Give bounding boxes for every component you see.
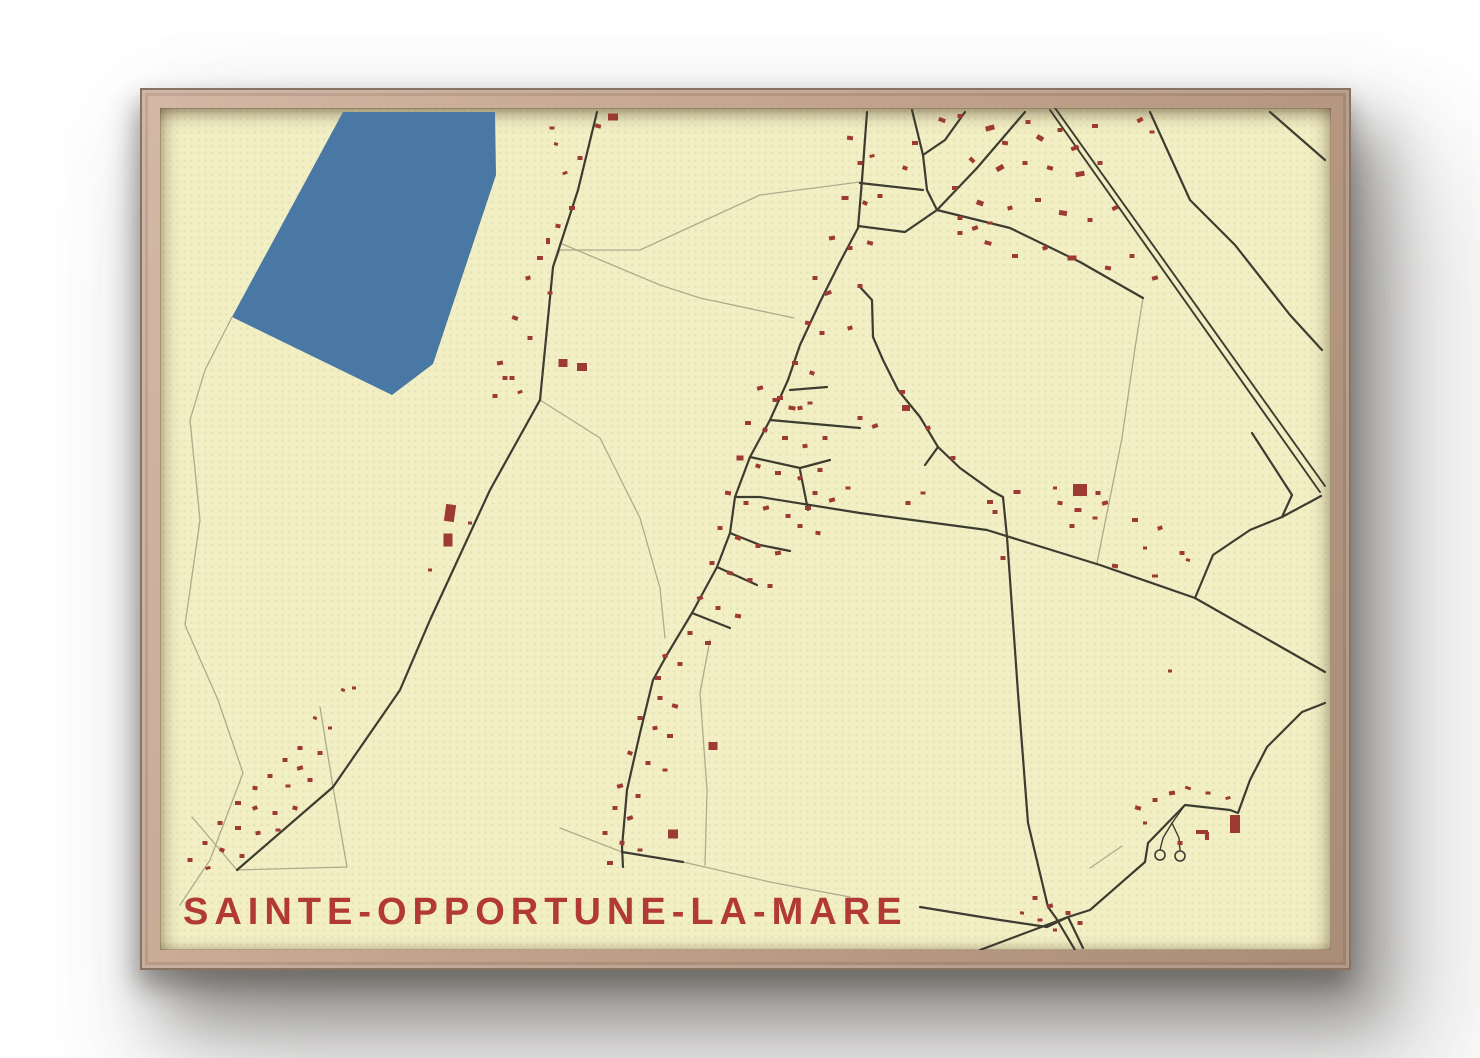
road-segment — [770, 420, 860, 428]
building — [1088, 218, 1093, 222]
building — [268, 774, 273, 778]
building — [1035, 198, 1041, 202]
building — [546, 238, 550, 244]
building — [537, 256, 543, 260]
road-segment — [980, 917, 1068, 950]
building — [1206, 792, 1211, 795]
building — [1096, 491, 1101, 495]
building — [444, 534, 453, 547]
building — [569, 206, 575, 210]
road-segment — [1270, 112, 1325, 160]
building — [652, 726, 658, 731]
road-segment — [735, 497, 1325, 672]
building — [906, 501, 911, 505]
building — [318, 751, 323, 755]
building — [987, 500, 993, 504]
building — [818, 468, 823, 472]
building — [218, 821, 223, 825]
building — [688, 631, 693, 635]
building — [1078, 921, 1083, 925]
building — [696, 595, 703, 601]
building — [815, 531, 821, 536]
building — [1105, 266, 1112, 271]
culdesac-loop — [1175, 851, 1185, 861]
building — [444, 504, 456, 522]
building — [813, 491, 818, 495]
building — [846, 487, 851, 490]
building — [510, 376, 515, 380]
poster-frame: SAINTE-OPPORTUNE-LA-MARE — [140, 88, 1351, 970]
lake — [232, 112, 496, 395]
building — [188, 858, 193, 862]
path-segment — [333, 787, 347, 867]
path-segment — [553, 182, 860, 267]
building — [273, 811, 278, 815]
building — [1093, 517, 1098, 520]
building — [745, 421, 751, 425]
building — [988, 222, 993, 225]
path-segment — [320, 707, 333, 787]
building — [1225, 796, 1231, 800]
map-poster-paper: SAINTE-OPPORTUNE-LA-MARE — [160, 108, 1331, 950]
building — [1112, 564, 1119, 569]
building — [235, 826, 241, 830]
road-segment — [1150, 112, 1322, 350]
building — [1057, 501, 1063, 506]
building — [297, 765, 304, 770]
building — [525, 275, 531, 280]
building — [617, 783, 624, 788]
building — [517, 390, 523, 395]
building — [1130, 254, 1135, 258]
building — [1092, 124, 1098, 128]
road-segment — [717, 567, 757, 585]
building — [493, 394, 498, 398]
building — [636, 794, 641, 798]
building — [1026, 120, 1031, 124]
building — [667, 734, 673, 738]
building — [802, 444, 808, 449]
building — [252, 805, 258, 810]
building — [847, 325, 853, 330]
path-segment — [237, 867, 347, 870]
building — [805, 506, 811, 510]
building — [808, 402, 813, 405]
building — [1102, 500, 1109, 505]
building — [619, 841, 625, 846]
building — [613, 806, 618, 810]
building — [308, 778, 313, 782]
building — [1205, 832, 1209, 840]
path-segment — [560, 243, 794, 318]
building — [607, 861, 613, 865]
path-segment — [560, 828, 622, 852]
building — [968, 156, 975, 163]
road-segment — [1055, 108, 1325, 486]
path-segment — [700, 640, 710, 865]
building — [1038, 919, 1043, 922]
building — [820, 331, 825, 335]
building — [548, 292, 553, 295]
building — [341, 688, 346, 692]
building — [1150, 131, 1155, 134]
building — [550, 127, 555, 130]
building — [313, 716, 318, 720]
building — [984, 240, 992, 246]
lake-layer — [232, 112, 496, 395]
building — [1068, 256, 1077, 261]
road-segment — [750, 457, 830, 468]
building — [603, 831, 608, 835]
building — [976, 199, 984, 206]
building — [782, 436, 788, 440]
building — [798, 524, 803, 528]
building — [755, 463, 761, 468]
building — [773, 398, 778, 402]
building — [1033, 896, 1038, 900]
building — [1075, 171, 1085, 177]
building — [862, 200, 868, 206]
building — [1053, 929, 1057, 932]
building — [792, 361, 798, 365]
building — [678, 662, 683, 666]
building — [658, 696, 663, 700]
building — [878, 194, 883, 198]
building — [716, 606, 721, 610]
building — [705, 641, 711, 645]
road-segment — [622, 852, 683, 862]
path-segment — [180, 317, 243, 905]
building — [1153, 798, 1158, 802]
building — [255, 831, 261, 836]
building — [786, 514, 791, 518]
building — [663, 769, 668, 772]
building — [725, 491, 732, 496]
building — [240, 854, 245, 858]
wall-background: SAINTE-OPPORTUNE-LA-MARE — [0, 0, 1480, 1058]
poster-title: SAINTE-OPPORTUNE-LA-MARE — [183, 891, 908, 934]
building — [823, 436, 828, 440]
building — [993, 510, 998, 514]
building — [858, 284, 863, 288]
path-segment — [1097, 298, 1143, 563]
building — [655, 676, 661, 680]
culdesac-loop — [1155, 850, 1165, 860]
building — [1002, 141, 1009, 146]
road-segment — [860, 183, 923, 190]
building — [858, 416, 863, 420]
building — [1230, 815, 1240, 833]
building — [562, 171, 568, 176]
building — [1007, 205, 1013, 210]
building — [710, 561, 715, 565]
road-segment — [790, 387, 827, 390]
building — [748, 578, 753, 582]
building — [203, 841, 208, 845]
building — [626, 815, 633, 821]
building — [1157, 525, 1163, 530]
building — [1059, 210, 1068, 216]
building — [768, 584, 773, 588]
building — [938, 117, 946, 123]
road-segment — [1252, 433, 1292, 517]
building — [1169, 791, 1176, 796]
building — [775, 471, 781, 475]
road-segment — [858, 210, 937, 232]
building — [503, 376, 508, 380]
building — [528, 336, 533, 340]
building — [737, 456, 744, 461]
building — [1047, 165, 1054, 170]
building — [428, 569, 432, 572]
building — [829, 497, 836, 502]
building — [777, 396, 783, 400]
building — [1020, 911, 1024, 915]
building — [958, 216, 963, 220]
building — [1143, 547, 1147, 550]
building — [1185, 786, 1192, 791]
building — [497, 361, 504, 366]
building — [555, 224, 561, 229]
building — [1132, 518, 1138, 522]
road-segment — [937, 112, 1025, 210]
road-segment — [622, 112, 867, 867]
road-segment — [925, 447, 938, 465]
building — [971, 225, 978, 231]
building — [1058, 128, 1063, 132]
road-segment — [1195, 496, 1321, 598]
building — [1180, 551, 1185, 555]
building — [718, 526, 723, 530]
building — [1053, 487, 1057, 490]
building — [744, 501, 749, 505]
culdesac-layer — [1155, 850, 1185, 861]
building — [985, 124, 995, 131]
building — [735, 614, 742, 619]
building — [951, 456, 956, 460]
building — [848, 246, 853, 250]
road-segment — [692, 613, 730, 628]
building — [1036, 134, 1045, 142]
building — [829, 236, 836, 241]
building — [1066, 911, 1071, 915]
building — [858, 161, 863, 165]
building — [292, 805, 298, 810]
building — [1075, 508, 1082, 512]
building — [756, 544, 761, 548]
building — [219, 847, 225, 852]
building — [867, 240, 874, 245]
building — [577, 363, 587, 371]
building — [1098, 161, 1103, 165]
building — [1136, 117, 1143, 123]
building — [1152, 275, 1159, 280]
road-segment — [937, 210, 1143, 298]
building — [958, 114, 963, 118]
building — [709, 742, 718, 750]
building — [869, 154, 875, 158]
building — [595, 123, 602, 128]
building — [286, 785, 291, 788]
building — [468, 522, 472, 525]
building — [1070, 524, 1075, 528]
building — [958, 231, 963, 235]
building — [995, 164, 1004, 172]
road-segment — [912, 110, 937, 210]
road-segment — [920, 703, 1325, 927]
road-segment — [860, 287, 1075, 950]
building — [627, 750, 633, 755]
building — [328, 727, 332, 730]
path-segment — [1090, 846, 1122, 868]
road-segment — [730, 533, 790, 551]
path-segment — [192, 817, 237, 870]
road-segment — [1172, 823, 1180, 850]
building — [1001, 556, 1006, 560]
building — [952, 186, 958, 190]
building — [788, 405, 796, 410]
building — [1152, 575, 1158, 578]
building — [757, 385, 764, 390]
building — [608, 114, 618, 121]
building — [511, 315, 518, 321]
building — [276, 829, 281, 832]
map-svg — [160, 108, 1331, 950]
building — [668, 830, 678, 839]
building — [899, 390, 905, 394]
building — [842, 196, 849, 200]
building — [1073, 484, 1087, 496]
path-segment — [540, 400, 665, 638]
building — [1178, 841, 1183, 845]
building — [352, 687, 356, 690]
building — [734, 535, 741, 541]
building — [847, 136, 854, 141]
building — [578, 156, 583, 160]
building — [1135, 805, 1142, 810]
building — [921, 492, 926, 495]
building — [672, 703, 679, 708]
building — [797, 406, 803, 411]
building — [638, 716, 643, 720]
building — [1143, 822, 1147, 825]
building — [902, 165, 908, 170]
building — [662, 653, 668, 658]
building — [559, 359, 568, 367]
road-segment — [923, 112, 965, 155]
building — [1023, 161, 1028, 165]
building — [763, 505, 770, 510]
building — [813, 276, 818, 280]
building — [1014, 490, 1021, 494]
building — [298, 746, 303, 750]
building — [283, 758, 288, 762]
building — [1168, 670, 1172, 673]
building — [235, 801, 241, 805]
building — [902, 405, 910, 411]
building — [1186, 558, 1191, 562]
building — [871, 423, 878, 429]
building — [252, 786, 258, 791]
building — [912, 141, 918, 145]
building — [1012, 254, 1018, 258]
building — [809, 370, 815, 375]
building — [727, 570, 734, 575]
building — [775, 551, 782, 556]
building — [646, 761, 651, 765]
building — [638, 849, 643, 852]
building — [554, 142, 559, 146]
